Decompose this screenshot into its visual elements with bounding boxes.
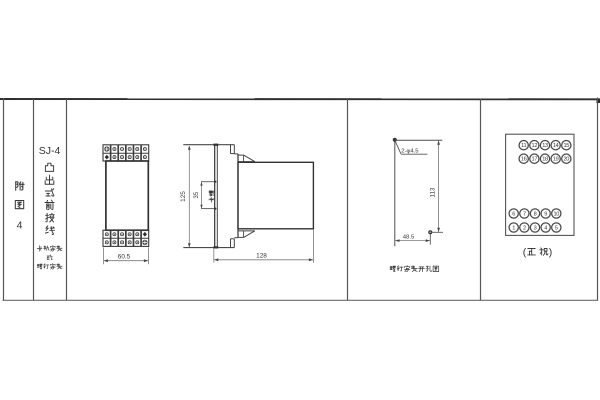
svg-text:1: 1 <box>512 226 515 232</box>
svg-text:11: 11 <box>521 143 526 149</box>
svg-text:7: 7 <box>523 212 526 218</box>
svg-text:19: 19 <box>553 157 559 163</box>
svg-text:48.5: 48.5 <box>403 235 415 241</box>
svg-text:6: 6 <box>512 212 515 218</box>
svg-text:125: 125 <box>180 191 187 202</box>
svg-text:4: 4 <box>17 220 23 232</box>
svg-text:3: 3 <box>534 226 537 232</box>
svg-text:(: ( <box>523 247 527 259</box>
svg-text:5: 5 <box>555 226 558 232</box>
svg-text:SJ-4: SJ-4 <box>39 145 61 157</box>
svg-text:128: 128 <box>256 253 267 260</box>
svg-text:14: 14 <box>553 143 559 149</box>
svg-text:20: 20 <box>563 157 569 163</box>
svg-text:12: 12 <box>532 143 538 149</box>
svg-text:4: 4 <box>544 226 547 232</box>
svg-text:10: 10 <box>553 212 559 218</box>
svg-text:113: 113 <box>429 187 436 197</box>
svg-text:15: 15 <box>563 143 569 149</box>
svg-text:2-φ4.5: 2-φ4.5 <box>401 149 419 155</box>
svg-text:13: 13 <box>542 143 548 149</box>
svg-text:16: 16 <box>521 157 527 163</box>
svg-text:18: 18 <box>542 157 548 163</box>
svg-text:): ) <box>549 247 553 259</box>
svg-text:2: 2 <box>523 226 526 232</box>
svg-text:9: 9 <box>544 212 547 218</box>
svg-text:8: 8 <box>534 212 537 218</box>
svg-text:35: 35 <box>193 191 200 198</box>
svg-text:60.5: 60.5 <box>118 254 131 261</box>
svg-text:17: 17 <box>532 157 538 163</box>
